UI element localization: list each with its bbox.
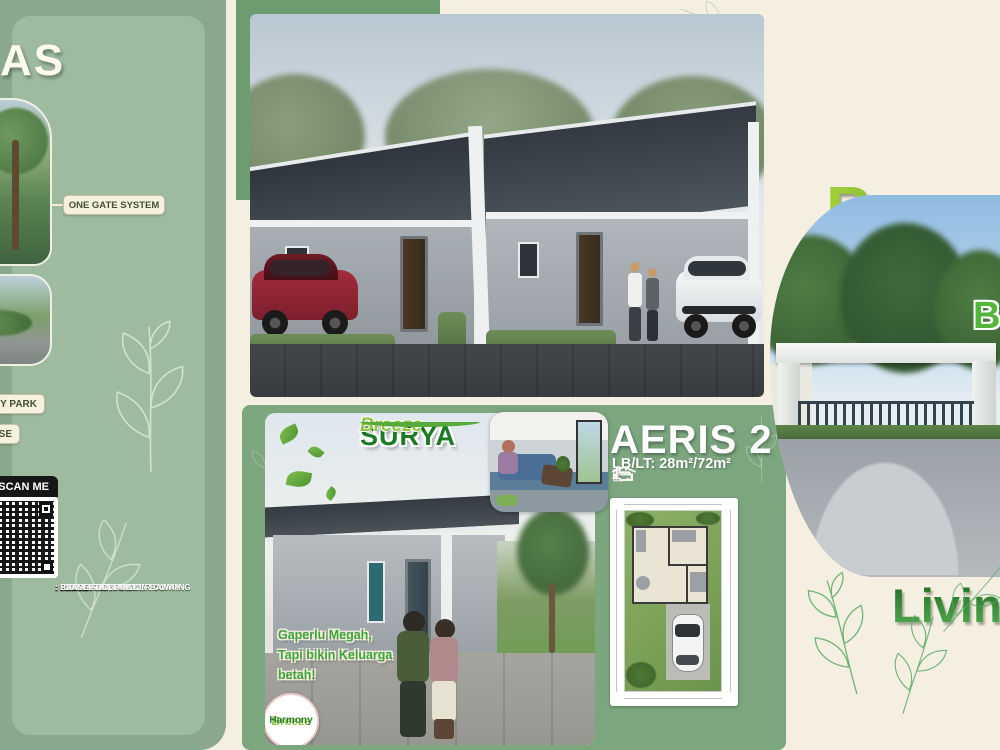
person-pants — [629, 307, 641, 341]
plan-shrub — [626, 662, 656, 688]
logo-swoosh — [360, 417, 480, 427]
falling-leaf — [286, 469, 312, 489]
scan-me-header: SCAN ME — [0, 476, 58, 497]
facility-photo-park — [0, 274, 52, 366]
driveway — [250, 344, 764, 397]
man-pants — [400, 681, 426, 737]
plan-bed — [672, 530, 696, 542]
right-fascia — [486, 212, 754, 219]
label-club-house-partial: OUSE — [0, 424, 20, 444]
person-pants — [647, 310, 658, 341]
qr-finder-square — [41, 561, 53, 573]
spec-item: : BIO SEPTIC, TANDON BAWAH — [55, 581, 181, 594]
tagline-line2: Tapi bikin Keluarga — [278, 645, 408, 665]
car-grille — [682, 306, 756, 314]
person-shirt — [646, 278, 659, 310]
gate-beam — [776, 343, 996, 363]
person-head — [648, 268, 657, 277]
thumb-plant — [556, 456, 570, 472]
gate-pillar — [778, 363, 800, 429]
brochure-page: AS ONE GATE SYSTEM NY PARK OUSE SCAN ME … — [0, 0, 1000, 750]
right-house-window — [518, 242, 539, 278]
woman-head — [435, 619, 455, 639]
interior-wall — [686, 564, 688, 604]
car-windows — [688, 261, 746, 276]
interior-wall — [668, 564, 708, 566]
planter-shrub — [438, 312, 466, 346]
interior-photo-thumbnail — [490, 412, 608, 512]
main-house-photo — [250, 14, 764, 397]
plan-bed — [690, 572, 706, 592]
plan-table — [636, 576, 650, 590]
floor-plan-card — [610, 498, 738, 706]
tagline-text: Gaperlu Megah, Tapi bikin Keluarga betah… — [278, 625, 408, 685]
qr-code-box — [0, 497, 58, 578]
label-harmony-park-partial: NY PARK — [0, 394, 45, 414]
facility-photo-gate — [0, 98, 52, 266]
carport-count: 1 — [612, 466, 620, 483]
person — [646, 268, 659, 344]
dimension-line — [624, 504, 722, 505]
plan-car — [672, 614, 704, 672]
falling-leaf — [324, 486, 339, 501]
label-connector-line — [50, 204, 64, 206]
left-house-door — [400, 236, 428, 332]
person-shirt — [628, 273, 642, 307]
tree-trunk — [12, 140, 19, 250]
wheel — [732, 314, 756, 338]
interior-wall — [668, 526, 670, 566]
plan-car-windshield — [675, 624, 700, 637]
dimension-line — [616, 510, 617, 692]
qr-finder-square — [39, 502, 53, 516]
person-head — [630, 262, 640, 272]
thumb-sticker — [496, 495, 518, 506]
dimension-line — [624, 698, 722, 699]
falling-leaf — [307, 444, 324, 461]
left-fascia — [250, 220, 474, 227]
park-shrubs — [0, 310, 32, 336]
breeze-harmony-badge: Breeze Harmony — [265, 693, 319, 745]
promo-house-window — [367, 561, 385, 623]
tagline-line3: betah! — [278, 665, 408, 685]
tree-canopy — [0, 108, 48, 174]
label-one-gate-system: ONE GATE SYSTEM — [63, 195, 165, 215]
leaf-line-art — [92, 292, 210, 504]
dimension-line — [730, 510, 731, 692]
car-windows — [270, 260, 330, 276]
wheel — [684, 314, 708, 338]
plan-kitchen — [636, 530, 646, 552]
estate-entrance-photo: B — [770, 195, 1000, 577]
tree-trunk — [549, 583, 555, 653]
red-car — [252, 252, 358, 340]
tagline-line1: Gaperlu Megah, — [278, 625, 408, 645]
thumb-person — [498, 452, 518, 474]
facilities-title-partial: AS — [0, 36, 65, 86]
plumeria-tree — [517, 509, 589, 595]
woman-boots — [434, 719, 454, 739]
wheel — [322, 310, 348, 336]
plan-shrub — [696, 512, 720, 525]
partial-headline-letter: B — [973, 295, 1000, 338]
thumb-window — [576, 420, 602, 484]
plan-car-rear-window — [676, 655, 699, 665]
person — [628, 262, 642, 344]
white-car — [676, 254, 762, 342]
wheel — [262, 310, 288, 336]
woman-skirt — [432, 681, 456, 721]
right-house-door — [576, 232, 603, 326]
badge-line2: Harmony — [269, 716, 312, 726]
falling-leaf — [277, 423, 301, 444]
gate-pillar — [972, 361, 996, 427]
woman-top — [430, 637, 458, 683]
